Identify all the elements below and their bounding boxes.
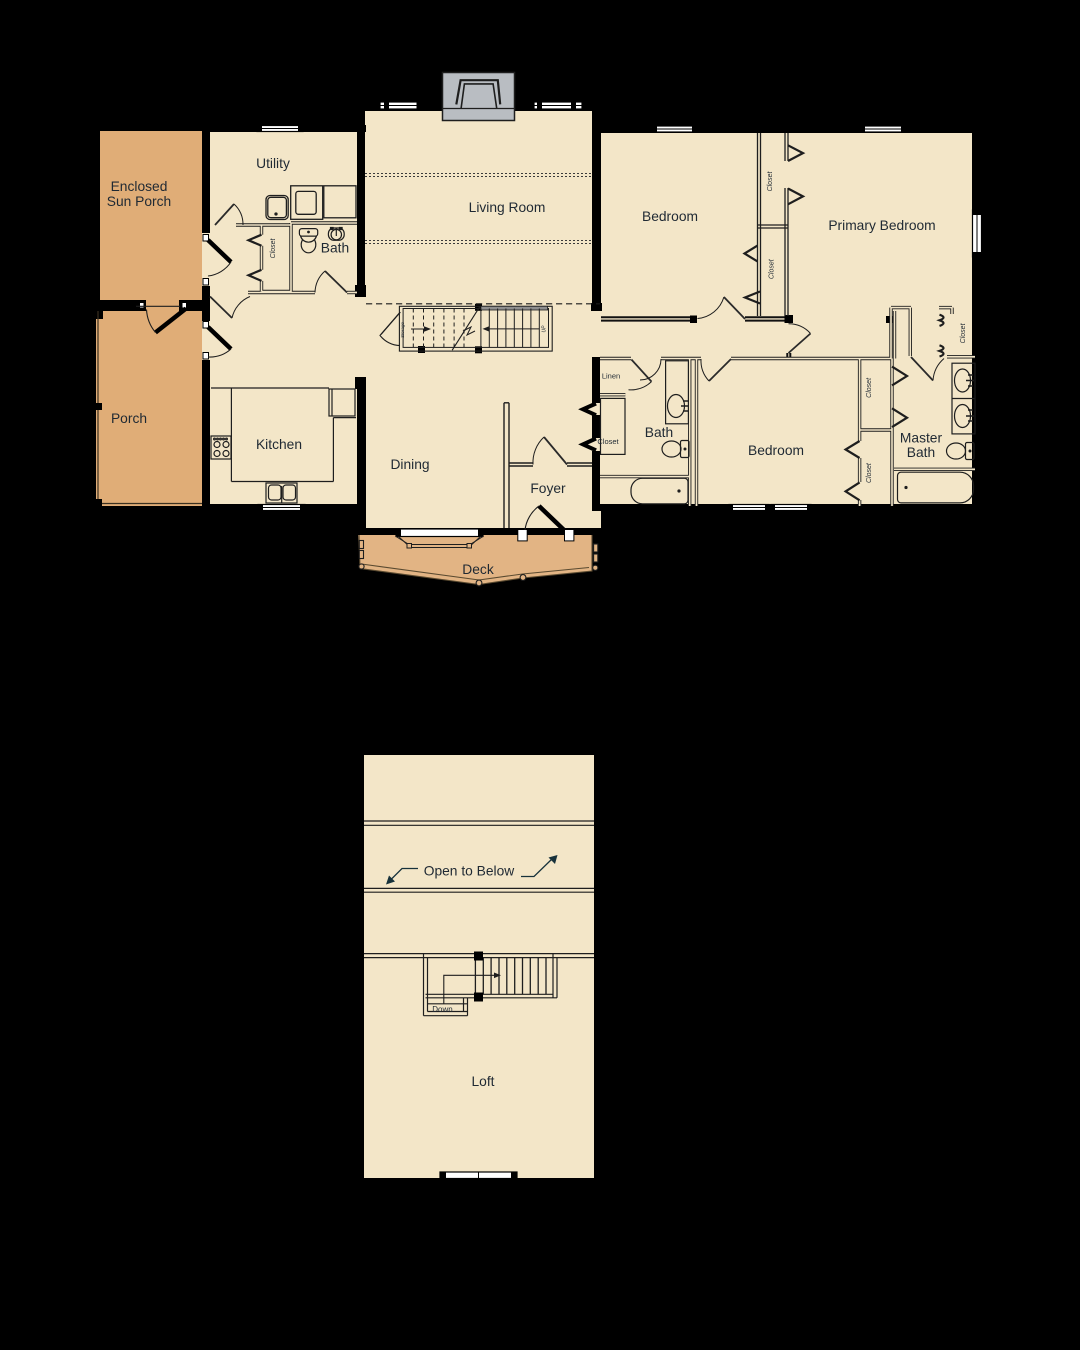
svg-text:Bath: Bath [645, 425, 673, 440]
svg-text:Dining: Dining [390, 457, 429, 472]
svg-text:Primary Bedroom: Primary Bedroom [828, 218, 935, 233]
svg-text:Foyer: Foyer [530, 481, 566, 496]
svg-text:Closet: Closet [769, 258, 776, 279]
svg-text:Down: Down [432, 1005, 452, 1014]
svg-text:Loft: Loft [471, 1074, 494, 1089]
svg-text:Closet: Closet [597, 437, 619, 446]
svg-text:Deck: Deck [462, 562, 494, 577]
svg-text:Bath: Bath [907, 445, 935, 460]
svg-text:Closet: Closet [767, 171, 774, 192]
svg-text:Closet: Closet [270, 237, 277, 258]
svg-text:Open to Below: Open to Below [424, 864, 515, 879]
svg-text:Linen: Linen [602, 372, 620, 381]
svg-text:Bath: Bath [321, 241, 349, 256]
svg-text:Porch: Porch [111, 411, 147, 426]
svg-text:Utility: Utility [256, 156, 290, 171]
svg-text:Closet: Closet [866, 462, 873, 483]
svg-text:UP: UP [542, 325, 548, 333]
svg-text:Bedroom: Bedroom [748, 443, 804, 458]
svg-text:Living Room: Living Room [469, 200, 546, 215]
svg-text:Enclosed: Enclosed [111, 179, 168, 194]
svg-text:Kitchen: Kitchen [256, 437, 302, 452]
svg-text:Master: Master [900, 431, 943, 446]
svg-text:Closet: Closet [866, 377, 873, 398]
svg-text:Storage: Storage [400, 322, 405, 338]
svg-text:Sun Porch: Sun Porch [107, 194, 171, 209]
svg-text:Closet: Closet [960, 322, 967, 343]
svg-text:Bedroom: Bedroom [642, 209, 698, 224]
